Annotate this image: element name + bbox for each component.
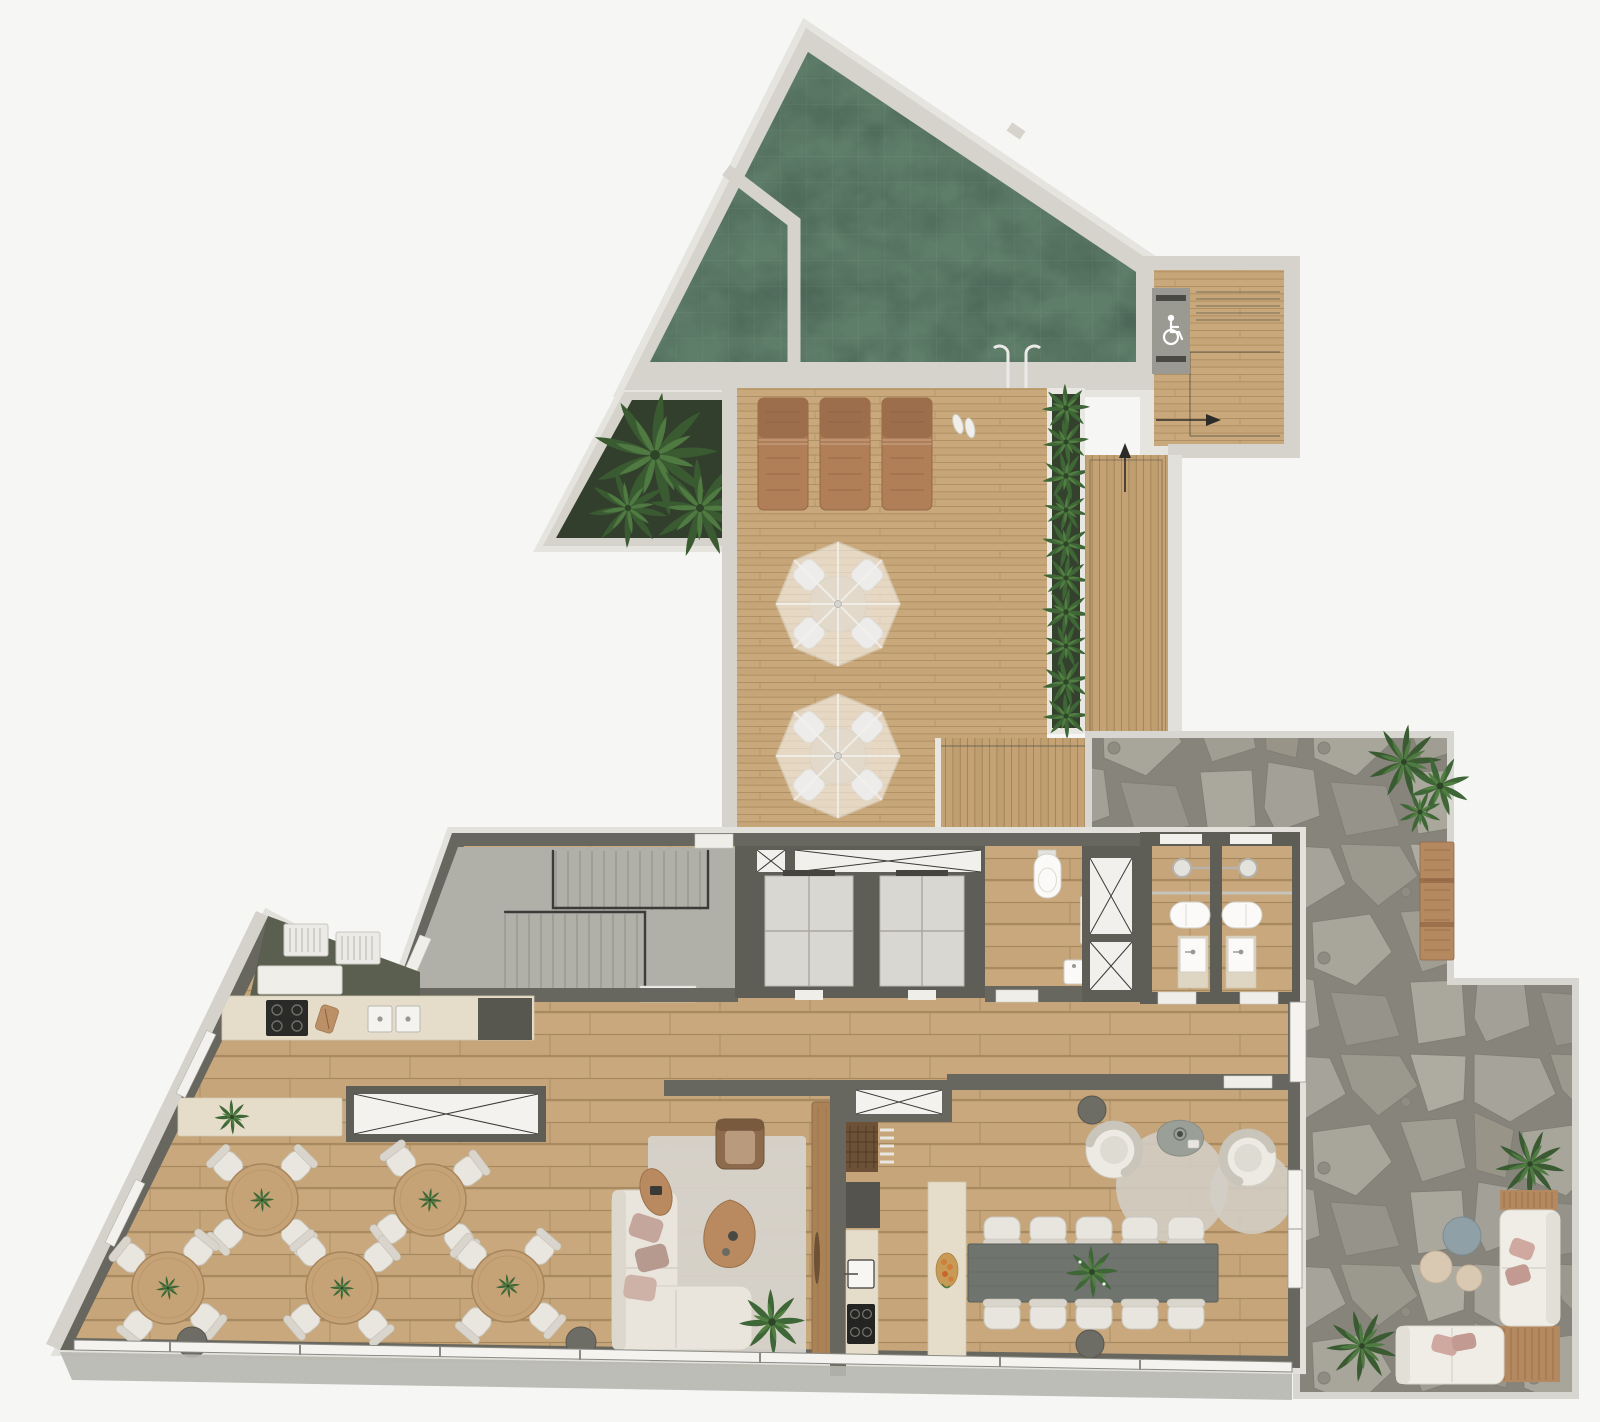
- pool-lift-platform: [1152, 288, 1190, 374]
- dining-table-long: [968, 1244, 1218, 1302]
- pouf: [1420, 1251, 1452, 1283]
- floor-plan-svg: [0, 0, 1600, 1422]
- party-chairs-bottom: [983, 1299, 1205, 1329]
- patio-door: [1290, 1002, 1306, 1082]
- sun-lounger: [820, 398, 870, 510]
- shower-rooms: [1140, 832, 1300, 1004]
- fruit-platter: [936, 1253, 958, 1287]
- pool-step: [1007, 122, 1026, 139]
- sun-lounger: [882, 398, 932, 510]
- floor-void: [346, 1086, 546, 1142]
- wc-door: [996, 990, 1038, 1002]
- sun-lounger: [758, 398, 808, 510]
- timber-pad: [1500, 1190, 1558, 1210]
- kitchenette-sink: [844, 1260, 874, 1288]
- timber-door-panel: [812, 1102, 832, 1360]
- timber-bench: [1420, 842, 1454, 960]
- service-shaft: [1082, 846, 1140, 1002]
- party-room-door: [1224, 1076, 1272, 1088]
- prep-shelf: [258, 966, 342, 994]
- armchair: [716, 1119, 764, 1169]
- pedestal-basin: [1226, 936, 1256, 988]
- parasol-set: [776, 542, 900, 666]
- kitchenette-cooktop: [847, 1304, 875, 1344]
- interior: [46, 832, 1306, 1400]
- stair-ramp: [1085, 455, 1168, 738]
- timber-pad: [1500, 1326, 1560, 1382]
- pouf: [1443, 1217, 1481, 1255]
- pouf: [1456, 1265, 1482, 1291]
- pillow: [622, 1274, 657, 1302]
- outdoor-sofa: [1500, 1210, 1560, 1326]
- pedestal-basin: [1178, 936, 1208, 988]
- stone-island: [928, 1182, 966, 1362]
- corner-basin: [1064, 960, 1084, 984]
- sideboard: [178, 1098, 342, 1136]
- parasol-set: [776, 694, 900, 818]
- tall-cabinet: [478, 998, 532, 1040]
- deck-lower-stairs: [935, 738, 1092, 838]
- tall-cabinet: [846, 1182, 880, 1228]
- column: [1078, 1096, 1106, 1124]
- elevator: [880, 870, 964, 1000]
- side-table: [1157, 1120, 1203, 1156]
- party-chairs-top: [983, 1217, 1205, 1247]
- toilet: [1222, 902, 1262, 928]
- outdoor-sofa: [1396, 1326, 1504, 1384]
- elevator-lobby: [735, 846, 985, 1000]
- cooktop: [266, 1000, 308, 1036]
- deck-door: [695, 834, 733, 848]
- elevator: [765, 870, 853, 1000]
- toilet: [1034, 850, 1061, 898]
- column: [1076, 1330, 1104, 1358]
- toilet: [1170, 902, 1210, 928]
- floor-plan-image: [0, 0, 1600, 1422]
- deck-left-wall: [722, 388, 737, 845]
